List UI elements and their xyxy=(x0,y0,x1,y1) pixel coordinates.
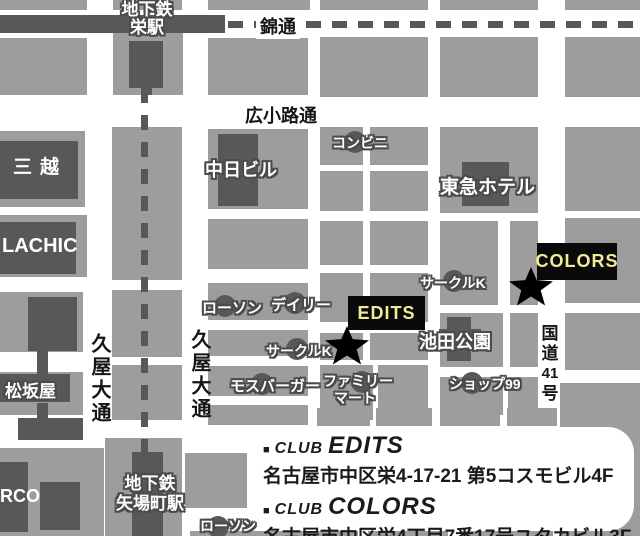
daily-label: デイリー xyxy=(271,294,331,315)
edits-address: 名古屋市中区栄4-17-21 第5コスモビル4F xyxy=(263,461,634,488)
colors-bullet-icon: ■ xyxy=(263,505,270,517)
building-block xyxy=(320,171,363,211)
matsuzakaya-label: 松坂屋 xyxy=(5,377,56,402)
colors-address: 名古屋市中区栄4丁目7番17号ユタカビル3F xyxy=(263,522,634,536)
nishiki-dori-label: 錦通 xyxy=(256,13,300,39)
colors-label-box: COLORS xyxy=(537,243,617,280)
building-block xyxy=(510,313,538,367)
colors-club-name: COLORS xyxy=(328,493,437,521)
edits-bullet-icon: ■ xyxy=(263,444,270,456)
yabacho-station-line2: 矢場町駅 xyxy=(116,494,184,513)
building-block xyxy=(320,37,428,97)
shop99-label: ショップ99 xyxy=(449,374,521,394)
building-block xyxy=(565,313,640,370)
building-block xyxy=(208,38,308,95)
parco-label: RCO xyxy=(0,486,40,507)
club-colors-title: ■ CLUB COLORS xyxy=(263,493,634,521)
conbini-label: コンビニ xyxy=(332,133,388,153)
family-mart-line1: ファミリー xyxy=(323,373,393,389)
mos-burger-label: モスバーガー xyxy=(230,375,320,396)
ikeda-park-label: 池田公園 xyxy=(419,328,491,354)
dark-building xyxy=(28,297,77,351)
family-mart-label: ファミリー マート xyxy=(323,373,387,407)
yabacho-station-label: 地下鉄 矢場町駅 xyxy=(108,474,192,514)
family-mart-line2: マート xyxy=(334,390,376,406)
hisaya-odori-dashed-line xyxy=(141,88,148,453)
sakae-station-label: 地下鉄 栄駅 xyxy=(112,1,182,37)
building-block xyxy=(370,171,428,211)
route41-char-1: 国 xyxy=(542,324,559,344)
edits-label-box: EDITS xyxy=(348,296,425,330)
building-block xyxy=(0,0,87,10)
route41-number: 41 xyxy=(542,364,559,384)
colors-label: COLORS xyxy=(536,251,619,272)
edits-label: EDITS xyxy=(357,303,415,324)
building-block xyxy=(0,38,87,95)
street-map: 地下鉄 栄駅 地下鉄 矢場町駅 錦通 広小路通 久屋大通 久屋大通 国 道 41… xyxy=(0,0,640,536)
lawson-south-label: ローソン xyxy=(200,516,256,536)
hisaya-odori-east-label: 久屋大通 xyxy=(185,329,214,421)
building-block xyxy=(565,37,640,97)
colors-club-word: CLUB xyxy=(275,501,323,519)
building-block xyxy=(565,127,640,211)
building-block xyxy=(440,37,538,97)
building-block xyxy=(208,405,308,425)
dark-building xyxy=(129,41,163,88)
building-block xyxy=(208,0,310,10)
info-box: ■ CLUB EDITS 名古屋市中区栄4-17-21 第5コスモビル4F ■ … xyxy=(250,427,634,531)
route41-char-2: 道 xyxy=(542,344,559,364)
dark-building xyxy=(37,351,48,374)
edits-club-word: CLUB xyxy=(275,440,323,458)
circle-k-east-label: サークルK xyxy=(420,273,486,293)
dark-building xyxy=(40,482,80,530)
building-block xyxy=(370,221,428,265)
tokyu-hotel-label: 東急ホテル xyxy=(440,172,535,199)
club-edits-title: ■ CLUB EDITS xyxy=(263,432,634,460)
dark-building xyxy=(18,418,83,440)
hirokoji-dori-label: 広小路通 xyxy=(245,102,317,128)
mitsukoshi-label: 三越 xyxy=(13,152,67,179)
lachic-label: LACHIC xyxy=(2,235,78,258)
building-block xyxy=(320,221,363,265)
building-block xyxy=(320,0,428,10)
circle-k-west-label: サークルK xyxy=(266,341,332,361)
lawson-north-label: ローソン xyxy=(202,297,262,318)
chunichi-building-label: 中日ビル xyxy=(205,156,277,182)
building-block xyxy=(208,219,308,269)
dark-building xyxy=(37,403,48,420)
edits-club-name: EDITS xyxy=(328,432,404,460)
building-block xyxy=(185,453,247,508)
sakae-station-line1: 地下鉄 xyxy=(122,0,173,19)
building-block xyxy=(565,0,640,10)
yabacho-station-line1: 地下鉄 xyxy=(125,474,176,493)
route-41-label: 国 道 41 号 xyxy=(538,324,562,404)
building-block xyxy=(440,0,538,10)
sakae-station-line2: 栄駅 xyxy=(130,18,164,37)
hisaya-odori-west-label: 久屋大通 xyxy=(85,333,114,425)
route41-char-3: 号 xyxy=(542,384,559,404)
